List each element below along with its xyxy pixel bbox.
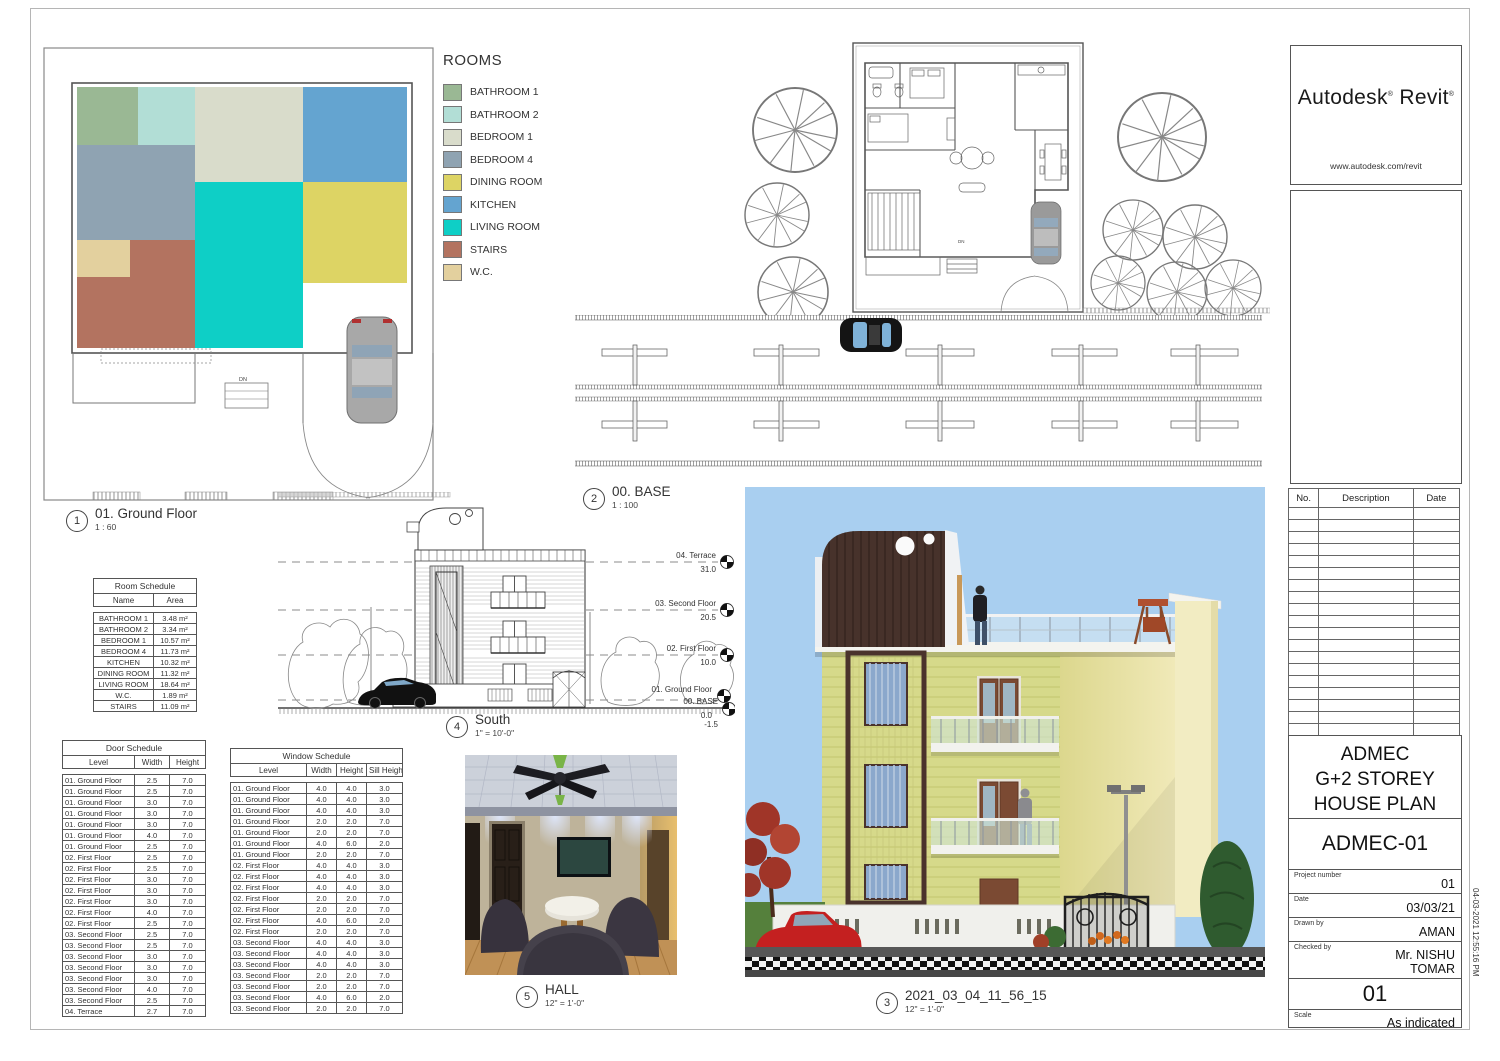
table-cell: 18.64 m² [154, 679, 197, 690]
table-row: 03. Second Floor4.07.0 [63, 984, 206, 995]
car-symbol-road [840, 318, 902, 352]
table-cell: 2.0 [337, 849, 367, 860]
revision-row [1289, 628, 1460, 640]
table-cell: 01. Ground Floor [231, 827, 307, 838]
table-cell: 4.0 [135, 830, 170, 841]
table-cell: 7.0 [170, 995, 206, 1006]
table-cell: W.C. [94, 690, 154, 701]
table-row: 03. Second Floor4.04.03.0 [231, 937, 403, 948]
autodesk-url-panel: www.autodesk.com/revit [1290, 147, 1462, 185]
table-cell: 02. First Floor [231, 915, 307, 926]
svg-text:DN: DN [239, 377, 247, 383]
svg-text:02. First Floor: 02. First Floor [667, 644, 717, 653]
curved-feature-wall [822, 527, 945, 647]
table-cell: 2.0 [367, 838, 403, 849]
table-cell: 01. Ground Floor [63, 797, 135, 808]
table-cell: 2.5 [135, 841, 170, 852]
legend-color-swatch [443, 151, 462, 168]
table-row: 02. First Floor3.07.0 [63, 896, 206, 907]
revision-row [1289, 604, 1460, 616]
table-row: 02. First Floor3.07.0 [63, 874, 206, 885]
table-cell: 2.5 [135, 940, 170, 951]
table-cell: 2.0 [367, 992, 403, 1003]
legend-item: BATHROOM 1 [443, 81, 542, 104]
road-plan [575, 315, 1262, 468]
table-row: 02. First Floor2.57.0 [63, 918, 206, 929]
rooms-legend: ROOMS BATHROOM 1BATHROOM 2BEDROOM 1BEDRO… [443, 52, 542, 284]
svg-text:03. Second Floor: 03. Second Floor [655, 599, 716, 608]
table-cell: 2.5 [135, 852, 170, 863]
revit-logo-panel: Autodesk® Revit® [1290, 45, 1462, 150]
level-markers [718, 556, 736, 716]
table-cell: 03. Second Floor [231, 970, 307, 981]
table-cell: 7.0 [367, 827, 403, 838]
table-cell: 2.0 [307, 970, 337, 981]
plan-stairs: DN [225, 377, 268, 408]
svg-text:01. Ground Floor: 01. Ground Floor [652, 685, 713, 694]
table-row: 01. Ground Floor3.07.0 [63, 797, 206, 808]
table-cell: 01. Ground Floor [63, 808, 135, 819]
table-cell: 7.0 [170, 918, 206, 929]
revision-row [1289, 508, 1460, 520]
table-cell: 3.0 [367, 937, 403, 948]
table-cell: 03. Second Floor [231, 948, 307, 959]
revit-sheet: { "sheet": { "timestamp": "04-03-2021 12… [0, 0, 1500, 1061]
table-cell: 2.0 [337, 981, 367, 992]
table-row: 01. Ground Floor2.02.07.0 [231, 849, 403, 860]
table-cell: 7.0 [170, 830, 206, 841]
table-cell: 01. Ground Floor [63, 830, 135, 841]
revision-row [1289, 580, 1460, 592]
legend-color-swatch [443, 84, 462, 101]
table-cell: 03. Second Floor [231, 959, 307, 970]
table-cell: 7.0 [170, 863, 206, 874]
table-row: 04. Terrace2.77.0 [63, 1006, 206, 1017]
table-cell: 4.0 [307, 805, 337, 816]
legend-color-swatch [443, 106, 462, 123]
table-cell: 2.0 [307, 981, 337, 992]
svg-text:20.5: 20.5 [700, 613, 716, 622]
table-row: 03. Second Floor2.57.0 [63, 995, 206, 1006]
table-cell: 2.7 [135, 1006, 170, 1017]
table-cell: 4.0 [307, 860, 337, 871]
table-cell: 03. Second Floor [63, 951, 135, 962]
elevation-gate [553, 670, 585, 707]
revision-row [1289, 640, 1460, 652]
table-cell: 11.09 m² [154, 701, 197, 712]
table-cell: 02. First Floor [231, 904, 307, 915]
table-cell: 7.0 [367, 904, 403, 915]
table-cell: 04. Terrace [63, 1006, 135, 1017]
table-cell: 2.0 [307, 893, 337, 904]
table-row: STAIRS11.09 m² [94, 701, 197, 712]
view-number-badge: 5 [516, 986, 538, 1008]
table-cell: 02. First Floor [63, 907, 135, 918]
table-cell: BATHROOM 1 [94, 613, 154, 624]
table-row: 02. First Floor2.57.0 [63, 863, 206, 874]
table-cell: 4.0 [337, 882, 367, 893]
table-cell: 7.0 [367, 849, 403, 860]
table-cell: 3.0 [135, 951, 170, 962]
view-number-badge: 1 [66, 510, 88, 532]
table-cell: 03. Second Floor [63, 984, 135, 995]
table-cell: 2.0 [367, 915, 403, 926]
street-poles [633, 345, 1200, 441]
svg-text:00. BASE: 00. BASE [683, 697, 718, 706]
revision-row [1289, 592, 1460, 604]
table-cell: 4.0 [337, 948, 367, 959]
table-cell: 01. Ground Floor [231, 838, 307, 849]
table-cell: 03. Second Floor [63, 940, 135, 951]
table-row: 01. Ground Floor4.06.02.0 [231, 838, 403, 849]
table-cell: 2.0 [307, 1003, 337, 1014]
table-row: BEDROOM 411.73 m² [94, 646, 197, 657]
table-cell: 3.0 [135, 819, 170, 830]
table-row: 03. Second Floor4.04.03.0 [231, 959, 403, 970]
table-cell: 2.0 [337, 1003, 367, 1014]
table-cell: 4.0 [307, 915, 337, 926]
table-cell: 7.0 [170, 929, 206, 940]
elevation-building [393, 508, 585, 707]
table-cell: 01. Ground Floor [63, 841, 135, 852]
legend-item: W.C. [443, 261, 542, 284]
table-row: 03. Second Floor4.04.03.0 [231, 948, 403, 959]
legend-label: BEDROOM 4 [470, 154, 533, 166]
legend-color-swatch [443, 174, 462, 191]
legend-item: BEDROOM 1 [443, 126, 542, 149]
table-cell: 02. First Floor [63, 896, 135, 907]
table-cell: 2.5 [135, 786, 170, 797]
table-cell: 03. Second Floor [231, 937, 307, 948]
legend-item: STAIRS [443, 239, 542, 262]
legend-item: KITCHEN [443, 194, 542, 217]
view-number-badge: 3 [876, 992, 898, 1014]
table-row: DINING ROOM11.32 m² [94, 668, 197, 679]
field-drawn-by: Drawn by AMAN [1289, 917, 1461, 941]
table-cell: 6.0 [337, 992, 367, 1003]
table-cell: 7.0 [170, 808, 206, 819]
table-row: BATHROOM 23.34 m² [94, 624, 197, 635]
view-title-south: 4 South 1" = 10'-0" [446, 712, 514, 738]
table-row: 02. First Floor3.07.0 [63, 885, 206, 896]
table-cell: 6.0 [337, 915, 367, 926]
legend-color-swatch [443, 241, 462, 258]
table-cell: 02. First Floor [231, 860, 307, 871]
table-cell: 4.0 [307, 992, 337, 1003]
table-cell: 01. Ground Floor [231, 805, 307, 816]
site-plan: DN [725, 40, 1270, 315]
revision-row [1289, 532, 1460, 544]
revision-row [1289, 652, 1460, 664]
revision-row [1289, 520, 1460, 532]
table-cell: 7.0 [170, 786, 206, 797]
table-cell: 2.0 [337, 926, 367, 937]
legend-color-swatch [443, 264, 462, 281]
table-cell: 4.0 [307, 871, 337, 882]
table-row: 02. First Floor4.07.0 [63, 907, 206, 918]
table-cell: 3.0 [367, 860, 403, 871]
table-cell: 2.0 [337, 904, 367, 915]
table-cell: 3.0 [135, 973, 170, 984]
table-cell: 3.0 [135, 885, 170, 896]
legend-item: DINING ROOM [443, 171, 542, 194]
table-cell: 2.0 [307, 904, 337, 915]
svg-text:04. Terrace: 04. Terrace [676, 551, 716, 560]
table-cell: LIVING ROOM [94, 679, 154, 690]
table-cell: 03. Second Floor [63, 962, 135, 973]
hall-render [465, 755, 677, 975]
table-cell: 10.57 m² [154, 635, 197, 646]
table-row: 03. Second Floor2.02.07.0 [231, 1003, 403, 1014]
table-cell: BEDROOM 1 [94, 635, 154, 646]
revision-row [1289, 724, 1460, 736]
table-cell: 01. Ground Floor [231, 794, 307, 805]
table-cell: 2.5 [135, 929, 170, 940]
view-title-render: 3 2021_03_04_11_56_15 12" = 1'-0" [876, 988, 1047, 1014]
table-cell: 7.0 [170, 852, 206, 863]
table-row: 01. Ground Floor4.04.03.0 [231, 805, 403, 816]
table-cell: 7.0 [170, 951, 206, 962]
revision-row [1289, 568, 1460, 580]
table-cell: 02. First Floor [63, 852, 135, 863]
legend-item: BATHROOM 2 [443, 104, 542, 127]
table-cell: 01. Ground Floor [231, 849, 307, 860]
exterior-render [745, 487, 1265, 977]
table-row: 01. Ground Floor4.07.0 [63, 830, 206, 841]
table-row: 03. Second Floor2.57.0 [63, 940, 206, 951]
svg-text:-1.5: -1.5 [704, 720, 718, 729]
table-cell: 4.0 [307, 937, 337, 948]
table-cell: 4.0 [337, 805, 367, 816]
table-cell: 4.0 [135, 984, 170, 995]
table-cell: 3.0 [367, 871, 403, 882]
table-row: 01. Ground Floor2.02.07.0 [231, 816, 403, 827]
table-cell: 3.0 [367, 948, 403, 959]
revision-row [1289, 616, 1460, 628]
table-row: LIVING ROOM18.64 m² [94, 679, 197, 690]
table-cell: 4.0 [337, 937, 367, 948]
legend-item: BEDROOM 4 [443, 149, 542, 172]
table-cell: 3.34 m² [154, 624, 197, 635]
table-cell: 7.0 [170, 1006, 206, 1017]
legend-label: KITCHEN [470, 199, 516, 211]
table-cell: 4.0 [337, 794, 367, 805]
table-row: 01. Ground Floor2.57.0 [63, 775, 206, 786]
table-cell: 3.0 [135, 797, 170, 808]
autodesk-revit-logo: Autodesk® Revit® [1298, 86, 1454, 110]
table-cell: 03. Second Floor [63, 995, 135, 1006]
drawing-number: ADMEC-01 [1289, 819, 1461, 869]
table-row: 02. First Floor4.04.03.0 [231, 860, 403, 871]
table-cell: 4.0 [337, 860, 367, 871]
table-cell: 7.0 [170, 896, 206, 907]
table-cell: 02. First Floor [63, 874, 135, 885]
window-schedule: Window Schedule LevelWidthHeightSill Hei… [230, 748, 403, 1014]
table-row: BEDROOM 110.57 m² [94, 635, 197, 646]
svg-text:DN: DN [958, 239, 965, 244]
table-cell: 3.0 [135, 896, 170, 907]
table-cell: 2.0 [307, 816, 337, 827]
table-cell: 4.0 [307, 959, 337, 970]
svg-text:0.0: 0.0 [701, 711, 713, 720]
table-cell: 2.0 [337, 827, 367, 838]
table-cell: 1.89 m² [154, 690, 197, 701]
table-cell: 01. Ground Floor [231, 783, 307, 794]
table-row: 02. First Floor2.02.07.0 [231, 926, 403, 937]
table-cell: 4.0 [337, 783, 367, 794]
titleblock: ADMEC G+2 STOREY HOUSE PLAN ADMEC-01 Pro… [1288, 735, 1462, 1028]
table-cell: 02. First Floor [63, 863, 135, 874]
table-cell: 3.0 [135, 874, 170, 885]
table-row: 01. Ground Floor3.07.0 [63, 808, 206, 819]
wall-slots [825, 919, 1051, 934]
table-cell: 02. First Floor [63, 918, 135, 929]
table-row: 02. First Floor2.57.0 [63, 852, 206, 863]
revision-row [1289, 544, 1460, 556]
table-cell: 4.0 [135, 907, 170, 918]
table-row: 02. First Floor2.02.07.0 [231, 893, 403, 904]
table-cell: KITCHEN [94, 657, 154, 668]
project-title: ADMEC G+2 STOREY HOUSE PLAN [1289, 736, 1461, 819]
autodesk-url: www.autodesk.com/revit [1330, 161, 1422, 171]
revision-row [1289, 556, 1460, 568]
revision-row [1289, 688, 1460, 700]
table-row: 01. Ground Floor4.04.03.0 [231, 794, 403, 805]
table-cell: 02. First Floor [63, 885, 135, 896]
door-schedule: Door Schedule LevelWidthHeight 01. Groun… [62, 740, 206, 1017]
table-row: KITCHEN10.32 m² [94, 657, 197, 668]
view-title-ground-floor: 1 01. Ground Floor 1 : 60 [66, 506, 197, 532]
table-cell: 4.0 [307, 783, 337, 794]
table-row: 02. First Floor4.06.02.0 [231, 915, 403, 926]
table-cell: 4.0 [307, 838, 337, 849]
ground-floor-plan: DN [40, 40, 435, 505]
table-cell: 7.0 [170, 841, 206, 852]
room-schedule: Room Schedule NameArea BATHROOM 13.48 m²… [93, 578, 197, 712]
legend-title: ROOMS [443, 52, 542, 69]
table-cell: 6.0 [337, 838, 367, 849]
table-cell: 3.0 [135, 962, 170, 973]
table-cell: 4.0 [307, 948, 337, 959]
table-cell: 4.0 [337, 871, 367, 882]
table-cell: 03. Second Floor [63, 929, 135, 940]
table-cell: 01. Ground Floor [63, 786, 135, 797]
table-cell: 2.0 [337, 970, 367, 981]
titleblock-blank-panel [1290, 190, 1462, 484]
tv [557, 837, 611, 877]
table-cell: DINING ROOM [94, 668, 154, 679]
table-row: 01. Ground Floor4.04.03.0 [231, 783, 403, 794]
table-cell: 03. Second Floor [63, 973, 135, 984]
table-cell: BEDROOM 4 [94, 646, 154, 657]
car-symbol-plan [347, 317, 397, 423]
table-cell: 7.0 [367, 893, 403, 904]
table-row: 03. Second Floor3.07.0 [63, 973, 206, 984]
room-fills [77, 87, 407, 348]
table-cell: 2.5 [135, 918, 170, 929]
table-cell: 2.5 [135, 995, 170, 1006]
table-cell: 03. Second Floor [231, 981, 307, 992]
table-cell: 7.0 [170, 885, 206, 896]
revision-row [1289, 676, 1460, 688]
legend-label: STAIRS [470, 244, 507, 256]
legend-color-swatch [443, 219, 462, 236]
table-row: 03. Second Floor2.02.07.0 [231, 981, 403, 992]
view-title-hall: 5 HALL 12" = 1'-0" [516, 982, 584, 1008]
table-row: BATHROOM 13.48 m² [94, 613, 197, 624]
table-cell: 11.32 m² [154, 668, 197, 679]
revision-row [1289, 712, 1460, 724]
table-cell: 01. Ground Floor [63, 775, 135, 786]
table-cell: 7.0 [170, 819, 206, 830]
table-cell: 4.0 [307, 794, 337, 805]
legend-label: LIVING ROOM [470, 221, 540, 233]
field-scale: Scale As indicated [1289, 1009, 1461, 1032]
table-cell: 02. First Floor [231, 882, 307, 893]
field-date: Date 03/03/21 [1289, 893, 1461, 917]
field-project-number: Project number 01 [1289, 869, 1461, 893]
table-cell: 7.0 [170, 907, 206, 918]
table-cell: 7.0 [367, 970, 403, 981]
svg-text:31.0: 31.0 [700, 565, 716, 574]
table-cell: 7.0 [170, 874, 206, 885]
table-row: 03. Second Floor3.07.0 [63, 962, 206, 973]
table-cell: 10.32 m² [154, 657, 197, 668]
table-cell: 01. Ground Floor [231, 816, 307, 827]
table-row: 03. Second Floor4.06.02.0 [231, 992, 403, 1003]
table-cell: 4.0 [337, 959, 367, 970]
svg-text:10.0: 10.0 [700, 658, 716, 667]
car-symbol-site [1031, 202, 1061, 264]
table-cell: 3.0 [367, 959, 403, 970]
table-cell: 7.0 [170, 984, 206, 995]
table-cell: STAIRS [94, 701, 154, 712]
table-cell: 3.0 [135, 808, 170, 819]
legend-label: W.C. [470, 266, 493, 278]
table-cell: 2.0 [337, 893, 367, 904]
table-row: 02. First Floor2.02.07.0 [231, 904, 403, 915]
table-row: 01. Ground Floor2.02.07.0 [231, 827, 403, 838]
table-row: 01. Ground Floor2.57.0 [63, 786, 206, 797]
table-cell: 3.0 [367, 882, 403, 893]
table-cell: 11.73 m² [154, 646, 197, 657]
table-cell: 3.0 [367, 783, 403, 794]
legend-color-swatch [443, 129, 462, 146]
legend-color-swatch [443, 196, 462, 213]
table-row: 03. Second Floor2.02.07.0 [231, 970, 403, 981]
table-cell: 7.0 [170, 962, 206, 973]
table-cell: 3.48 m² [154, 613, 197, 624]
legend-label: BATHROOM 2 [470, 109, 539, 121]
table-cell: 2.0 [337, 816, 367, 827]
revision-row [1289, 664, 1460, 676]
table-cell: 7.0 [170, 940, 206, 951]
table-cell: 7.0 [367, 1003, 403, 1014]
table-row: W.C.1.89 m² [94, 690, 197, 701]
legend-label: DINING ROOM [470, 176, 542, 188]
south-elevation: 04. Terrace 31.0 03. Second Floor 20.5 0… [278, 492, 735, 742]
table-cell: 02. First Floor [231, 871, 307, 882]
sheet-number: 01 [1289, 978, 1461, 1009]
table-cell: 02. First Floor [231, 893, 307, 904]
table-cell: 2.0 [307, 849, 337, 860]
table-cell: 2.5 [135, 775, 170, 786]
view-number-badge: 4 [446, 716, 468, 738]
table-row: 03. Second Floor2.57.0 [63, 929, 206, 940]
table-cell: 7.0 [170, 973, 206, 984]
table-cell: 2.0 [307, 827, 337, 838]
table-row: 03. Second Floor3.07.0 [63, 951, 206, 962]
